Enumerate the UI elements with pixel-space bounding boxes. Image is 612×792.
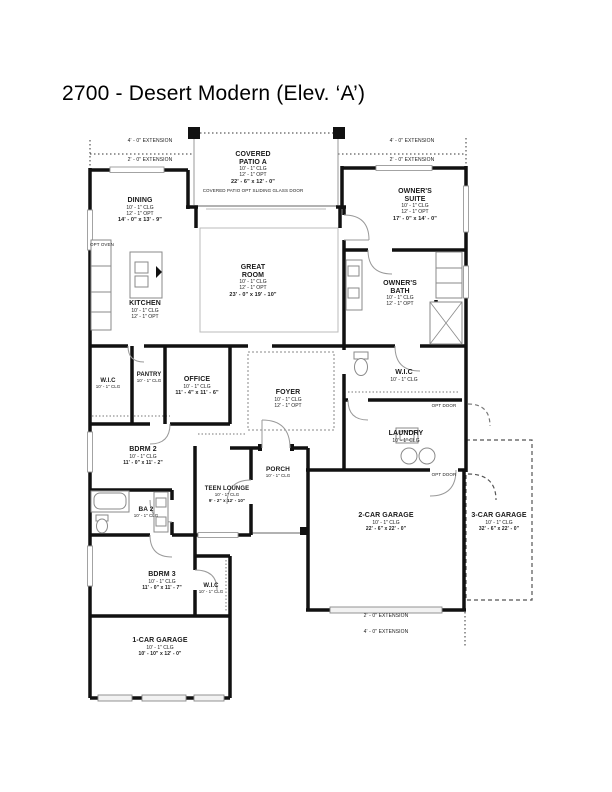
room-label-porch: PORCH 10' - 1" CLG: [266, 466, 290, 479]
floor-plan: 2700 - Desert Modern (Elev. ‘A’): [0, 0, 612, 792]
room-label-dining: DINING 10' - 1" CLG 12' - 1" OPT 14' - 0…: [118, 197, 162, 224]
room-label-2-car-garage: 2-CAR GARAGE 10' - 1" CLG 22' - 6" x 22'…: [358, 512, 413, 532]
extension-label-bottom-4: 4' - 0" EXTENSION: [364, 629, 409, 635]
extension-label-top-right-2: 2' - 0" EXTENSION: [390, 157, 435, 163]
washer: [401, 448, 417, 464]
three-car-garage-dashed-outline: [466, 404, 532, 600]
toilet-tank: [354, 352, 368, 359]
extension-label-top-left-2: 2' - 0" EXTENSION: [128, 157, 173, 163]
room-label-kitchen: KITCHEN 10' - 1" CLG 12' - 1" OPT: [129, 300, 161, 320]
room-label-wic-owners: W.I.C 10' - 1" CLG: [390, 369, 417, 383]
dryer: [419, 448, 435, 464]
room-label-great-room: GREAT ROOM 10' - 1" CLG 12' - 1" OPT 23'…: [229, 264, 276, 299]
extension-label-bottom-2: 2' - 0" EXTENSION: [364, 613, 409, 619]
room-label-ba2: BA 2 10' - 1" CLG: [134, 506, 158, 519]
room-label-bdrm3: BDRM 3 10' - 1" CLG 11' - 0" x 11' - 7": [142, 571, 182, 591]
extension-label-top-left-4: 4' - 0" EXTENSION: [128, 138, 173, 144]
room-label-owners-bath: OWNER'S BATH 10' - 1" CLG 12' - 1" OPT: [378, 280, 422, 308]
toilet: [355, 359, 368, 376]
opt-door-note-2: OPT DOOR: [432, 472, 457, 477]
floorplan-linework: [0, 0, 612, 792]
opt-oven-note: OPT OVEN: [90, 242, 110, 247]
linen-cabinet: [436, 252, 462, 298]
room-label-wic-bdrm3: W.I.C 10' - 1" CLG: [199, 583, 223, 595]
room-label-covered-patio: COVERED PATIO A 10' - 1" CLG 12' - 1" OP…: [224, 151, 282, 186]
room-label-laundry: LAUNDRY 10' - 1" CLG: [389, 430, 424, 444]
room-label-bdrm2: BDRM 2 10' - 1" CLG 11' - 0" x 11' - 2": [123, 446, 163, 466]
room-label-pantry: PANTRY 10' - 1" CLG: [137, 372, 162, 384]
room-label-3-car-garage: 3-CAR GARAGE 10' - 1" CLG 32' - 6" x 22'…: [471, 512, 526, 532]
toilet-2: [97, 519, 108, 533]
kitchen-cabinets: [91, 240, 111, 330]
patio-note: COVERED PATIO OPT SLIDING GLASS DOOR: [203, 188, 304, 193]
plan-title: 2700 - Desert Modern (Elev. ‘A’): [62, 82, 365, 106]
room-label-teen-lounge: TEEN LOUNGE 10' - 1" CLG 9' - 2" x 12' -…: [205, 486, 249, 504]
room-label-1-car-garage: 1-CAR GARAGE 10' - 1" CLG 10' - 10" x 12…: [132, 637, 187, 657]
room-label-owners-suite: OWNER'S SUITE 10' - 1" CLG 12' - 1" OPT …: [392, 188, 438, 223]
room-label-foyer: FOYER 10' - 1" CLG 12' - 1" OPT: [274, 389, 301, 409]
opt-door-note-1: OPT DOOR: [432, 403, 457, 408]
extension-label-top-right-4: 4' - 0" EXTENSION: [390, 138, 435, 144]
room-label-office: OFFICE 10' - 1" CLG 11' - 4" x 11' - 6": [175, 376, 218, 397]
room-label-wic-hall: W.I.C 10' - 1" CLG: [96, 378, 120, 390]
